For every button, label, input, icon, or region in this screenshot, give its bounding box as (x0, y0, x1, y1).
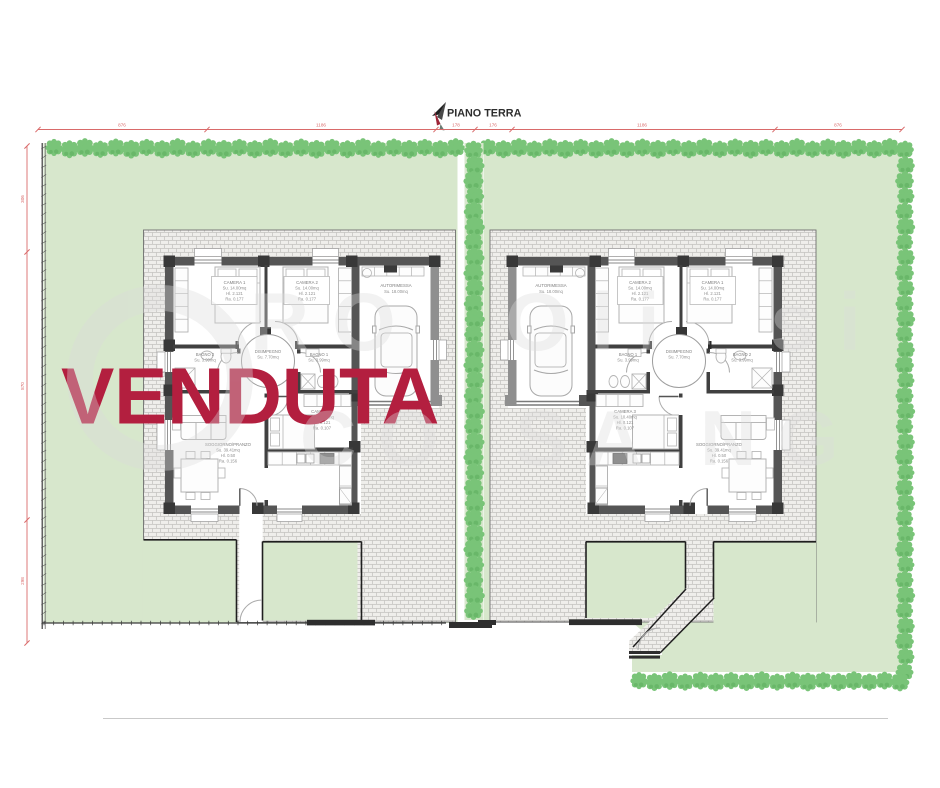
svg-text:876: 876 (834, 123, 842, 128)
svg-text:178: 178 (452, 123, 460, 128)
svg-text:1186: 1186 (316, 123, 326, 128)
svg-text:298: 298 (20, 577, 25, 585)
svg-text:Ra. 0.156: Ra. 0.156 (219, 459, 238, 464)
svg-text:N G: N G (700, 394, 839, 482)
svg-text:Su. 7.70mq: Su. 7.70mq (668, 355, 690, 360)
svg-text:DISIMPEGNO: DISIMPEGNO (666, 349, 692, 354)
svg-text:306: 306 (20, 195, 25, 203)
svg-text:Ra. 0.177: Ra. 0.177 (225, 297, 244, 302)
svg-text:176: 176 (489, 123, 497, 128)
svg-text:S A: S A (515, 394, 642, 482)
svg-text:Su. 14.00mq: Su. 14.00mq (701, 286, 725, 291)
svg-text:CAMERA 1: CAMERA 1 (702, 280, 724, 285)
svg-text:870: 870 (20, 382, 25, 390)
svg-text:Hl. 0.50: Hl. 0.50 (221, 453, 236, 458)
svg-text:Hl. 2.121: Hl. 2.121 (226, 291, 243, 296)
svg-text:R O: R O (250, 277, 396, 368)
svg-text:PIANO TERRA: PIANO TERRA (447, 108, 522, 120)
svg-text:876: 876 (118, 123, 126, 128)
svg-text:BAGNO 2: BAGNO 2 (733, 352, 752, 357)
svg-text:Hl. 2.121: Hl. 2.121 (704, 291, 721, 296)
svg-text:CAMERA 1: CAMERA 1 (224, 280, 246, 285)
svg-text:Ra. 0.177: Ra. 0.177 (703, 297, 722, 302)
svg-text:Su. 3.99mq: Su. 3.99mq (731, 358, 753, 363)
svg-text:s i: s i (770, 277, 861, 368)
svg-text:1186: 1186 (637, 123, 647, 128)
svg-text:Su. 14.00mq: Su. 14.00mq (223, 286, 247, 291)
svg-text:O l i: O l i (505, 277, 660, 368)
svg-text:C O: C O (300, 394, 439, 482)
